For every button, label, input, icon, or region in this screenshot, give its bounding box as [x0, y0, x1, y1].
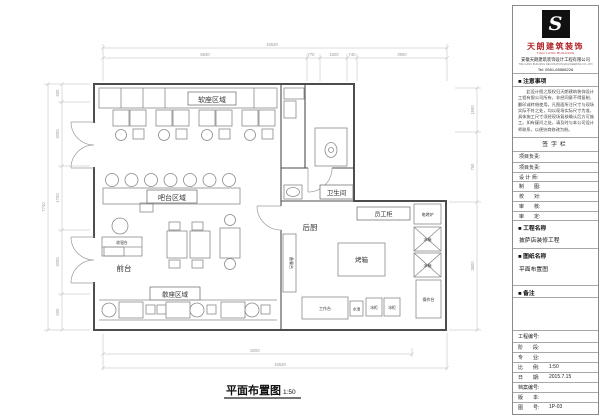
notice-body: 此设计图之版权归天朗建筑装饰设计工程有限公司所有，非经同意不得复制、翻印或转借使…	[518, 89, 594, 133]
divider	[513, 297, 598, 298]
open-seating-area: 散座区域	[99, 287, 277, 320]
info-row-label: 版 本:	[518, 394, 539, 401]
dim-left-seg5: 600	[55, 308, 60, 316]
divider	[513, 352, 598, 353]
sig-row-label: 制 图:	[519, 183, 540, 190]
dim-left-overall: 7740	[41, 202, 46, 212]
kitchen-door-arc	[257, 206, 281, 230]
company-full-name-en: TIAN LANG BUILDING DECORATION ENGINEERIN…	[513, 63, 598, 66]
divider	[513, 392, 598, 393]
company-logo: S	[542, 10, 570, 38]
dimension-left: 7740 600 2000 1700 2000 600	[41, 82, 90, 332]
label-open-seating: 散座区域	[162, 290, 189, 299]
dim-top-seg3: 1500	[329, 52, 339, 57]
dim-left-seg3: 1700	[55, 193, 60, 203]
sig-row-label: 审 核:	[519, 203, 540, 210]
project-name-header: ■ 工程名称	[518, 223, 546, 232]
label-front-desk: 前台	[117, 263, 132, 273]
office-room	[284, 88, 347, 166]
divider	[513, 330, 598, 331]
dim-top-overall: 15530	[266, 42, 278, 47]
label-bathroom: 卫生间	[327, 188, 347, 197]
company-brand-name-en: TIAN LANG BUILDING	[513, 51, 598, 55]
divider	[513, 342, 598, 343]
label-kitchen: 后厨	[303, 222, 318, 232]
plan-title: 平面布置图	[226, 383, 281, 397]
label-console: 操作台	[423, 296, 435, 302]
divider	[513, 181, 598, 182]
divider	[513, 285, 598, 286]
sig-row-label: 设 计 师:	[519, 174, 538, 181]
label-bar-area: 吧台区域	[158, 193, 186, 202]
label-oven: 烤箱	[355, 255, 369, 264]
dim-top-seg1: 6630	[200, 52, 210, 57]
dimension-top: 15530 6630 770 1500 740 3900	[101, 42, 449, 81]
title-block: S 天朗建筑装饰 TIAN LANG BUILDING 安徽天朗建筑装饰设计工程…	[512, 5, 599, 415]
info-row-value: 1:50	[549, 364, 559, 370]
front-desk-area: 收银台 前台	[102, 215, 240, 274]
divider	[513, 201, 598, 202]
dim-top-seg4: 740	[349, 52, 357, 57]
divider	[513, 402, 598, 403]
divider	[513, 86, 598, 87]
divider	[513, 211, 598, 212]
dim-left-seg1: 600	[55, 89, 60, 97]
divider	[513, 73, 598, 74]
info-row-label: 工程编号:	[518, 333, 539, 340]
divider	[513, 191, 598, 192]
dim-right-seg2: 750	[470, 163, 475, 171]
info-row-label: 比 例:	[518, 364, 539, 371]
divider	[513, 151, 598, 152]
drawing-sheet: 15530 6630 770 1500 740 3900 7740 600 20…	[0, 0, 600, 418]
label-fridge-a: 冰箱	[424, 236, 432, 242]
dim-bottom-overall: 15530	[274, 362, 286, 367]
label-electric-oven: 电烤炉	[422, 211, 434, 217]
dim-left-seg2: 2000	[55, 129, 60, 139]
sig-row-label: 项目负责:	[519, 164, 540, 171]
bathroom: 卫生间	[284, 185, 353, 199]
floor-plan: 15530 6630 770 1500 740 3900 7740 600 20…	[0, 0, 600, 418]
dim-bottom-inner: 8200	[250, 348, 260, 353]
kitchen: 后厨 员工柜 电烤炉 冰箱 冰箱 操作台 烤箱 备餐台 工作台 水池 冰柜 冰柜	[283, 204, 441, 319]
label-freezer-b: 冰柜	[388, 305, 396, 310]
divider	[513, 162, 598, 163]
dim-left-seg4: 2000	[55, 257, 60, 267]
remark-header: ■ 备注	[518, 288, 535, 297]
divider	[513, 248, 598, 249]
info-row-label: 图 号:	[518, 404, 539, 411]
divider	[513, 137, 598, 138]
label-cashier: 收银台	[116, 240, 128, 245]
company-tel: Tel: 0551-65568226	[513, 67, 598, 72]
divider	[513, 362, 598, 363]
soft-seating-area: 软座区域	[99, 88, 277, 141]
info-row-label: 日 期:	[518, 374, 539, 381]
label-soft-seating: 软座区域	[198, 95, 226, 104]
sig-row-label: 校 对:	[519, 193, 540, 200]
dim-top-seg2: 770	[308, 52, 316, 57]
divider	[513, 372, 598, 373]
info-row-label: 专 业:	[518, 354, 539, 361]
label-freezer-a: 冰柜	[370, 305, 378, 310]
dimension-right: 1500 750 3800	[449, 86, 481, 332]
sig-row-label: 审 定:	[519, 213, 540, 220]
dimension-bottom: 8200 15530	[101, 333, 449, 370]
info-row-value: 2015.7.15	[549, 374, 571, 380]
dim-right-seg3: 3800	[470, 261, 475, 271]
project-name-value: 披萨店装修工程	[519, 235, 560, 244]
signature-header: 签字栏	[513, 139, 598, 148]
divider	[513, 382, 598, 383]
label-fridge-b: 冰箱	[424, 262, 432, 268]
notice-header: ■ 注意事项	[518, 76, 546, 85]
label-prep-cabinet: 备餐台	[289, 257, 295, 269]
info-row-label: 档案编号:	[518, 384, 539, 391]
label-work-table: 工作台	[319, 305, 331, 311]
label-sink: 水池	[353, 307, 361, 312]
sig-row-label: 项目负责:	[519, 153, 540, 160]
dim-top-seg5: 3900	[397, 52, 407, 57]
divider	[513, 172, 598, 173]
drawing-name-header: ■ 图纸名称	[518, 251, 546, 260]
plan-title-group: 平面布置图 1:50	[224, 383, 301, 398]
bar-area: 吧台区域	[103, 174, 240, 213]
dim-right-seg1: 1500	[470, 105, 475, 115]
drawing-name-value: 平面布置图	[519, 264, 548, 273]
divider	[513, 220, 598, 221]
info-row-value: 1P-03	[549, 404, 562, 410]
label-staff-cabinet: 员工柜	[374, 211, 392, 219]
info-row-label: 阶 段:	[518, 344, 539, 351]
plan-scale: 1:50	[283, 389, 296, 396]
